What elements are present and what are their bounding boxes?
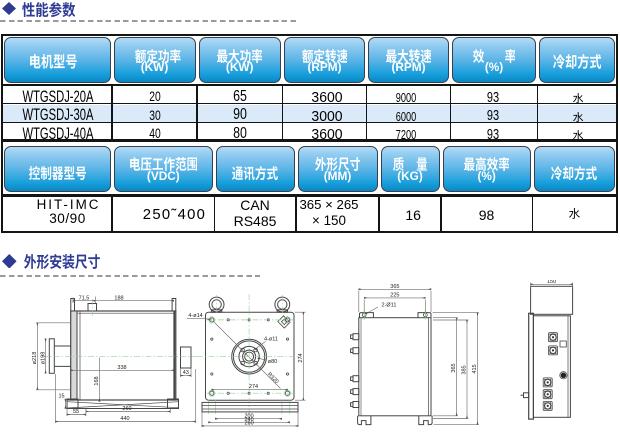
- svg-text:385: 385: [462, 365, 468, 374]
- svg-text:2-Ø11: 2-Ø11: [382, 303, 397, 309]
- svg-text:55: 55: [73, 409, 79, 415]
- svg-text:ø80: ø80: [268, 359, 277, 365]
- svg-text:43: 43: [183, 370, 189, 376]
- svg-text:260: 260: [122, 406, 131, 412]
- svg-text:440: 440: [120, 416, 129, 422]
- svg-text:71.5: 71.5: [79, 295, 90, 301]
- svg-text:150: 150: [547, 280, 556, 285]
- svg-text:415: 415: [472, 364, 478, 373]
- svg-text:ø198: ø198: [40, 352, 46, 365]
- svg-text:274: 274: [298, 353, 304, 362]
- svg-text:168: 168: [94, 376, 100, 385]
- svg-text:R320: R320: [266, 372, 280, 386]
- svg-text:4-ø11: 4-ø11: [264, 337, 278, 343]
- svg-text:188: 188: [114, 295, 123, 301]
- svg-text:365: 365: [390, 284, 399, 290]
- svg-text:15: 15: [58, 394, 64, 400]
- svg-text:338: 338: [117, 365, 126, 371]
- svg-text:ø218: ø218: [32, 352, 38, 365]
- svg-text:365: 365: [451, 363, 457, 372]
- svg-text:225: 225: [390, 293, 399, 299]
- svg-text:274: 274: [249, 384, 258, 390]
- svg-text:260: 260: [245, 421, 254, 427]
